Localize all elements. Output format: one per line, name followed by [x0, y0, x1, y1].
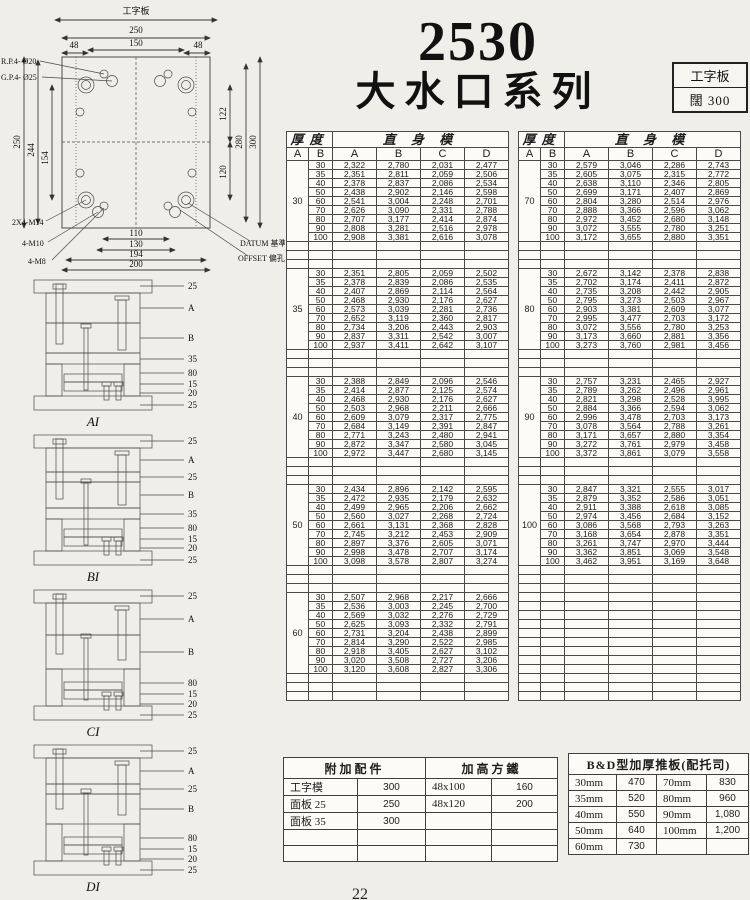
value-cell: 160: [492, 779, 558, 796]
empty-cell: [333, 368, 377, 377]
dim-value: 3,273: [609, 296, 653, 305]
thickness-block: 80302,6723,1422,3782,838352,7023,1742,41…: [519, 269, 741, 377]
spec-table-right: 厚度 直 身 模 A B A B C D 70302,5793,0462,286…: [518, 131, 741, 701]
empty-cell: [333, 476, 377, 485]
empty-cell: [284, 846, 358, 862]
empty-cell: [465, 242, 509, 251]
thickness-b-value: 100: [541, 233, 565, 242]
dim-value: 2,838: [697, 269, 741, 278]
empty-cell: [697, 251, 741, 260]
empty-row: [519, 242, 741, 251]
thickness-b-value: 35: [541, 278, 565, 287]
mold-pin: [104, 541, 109, 555]
empty-row: [287, 251, 509, 260]
dim-value: 2,788: [653, 422, 697, 431]
empty-cell: [541, 242, 565, 251]
dim-value: 2,086: [421, 278, 465, 287]
empty-row: [287, 458, 509, 467]
dim-value: 2,506: [465, 170, 509, 179]
dim-value: 2,662: [465, 503, 509, 512]
plate-callout: 20: [188, 854, 198, 864]
dim-value: 3,306: [465, 665, 509, 674]
thickness-a-value: 50: [287, 485, 309, 566]
thickness-b-value: 35: [541, 494, 565, 503]
dim-value: 2,788: [465, 206, 509, 215]
empty-cell: [541, 584, 565, 593]
empty-cell: [465, 584, 509, 593]
dim-value: 2,146: [421, 188, 465, 197]
dim-value: 2,315: [653, 170, 697, 179]
series-number: 2530: [292, 14, 664, 70]
empty-cell: [287, 575, 309, 584]
plate-callout: 35: [188, 509, 198, 519]
dim-value: 2,666: [465, 404, 509, 413]
dim-value: 2,496: [653, 386, 697, 395]
dim-value: 2,927: [697, 377, 741, 386]
dim-154: 154: [40, 151, 50, 165]
value-cell: 830: [707, 775, 749, 791]
plate-callout: 25: [188, 865, 198, 875]
empty-cell: [377, 350, 421, 359]
empty-cell: [609, 692, 653, 701]
empty-row: [287, 674, 509, 683]
dim-value: 2,734: [333, 323, 377, 332]
empty-cell: [653, 593, 697, 602]
empty-cell: [653, 368, 697, 377]
dim-280: 280: [234, 135, 244, 149]
dim-value: 3,263: [697, 521, 741, 530]
table-row: 602,6613,1312,3682,828: [287, 521, 509, 530]
mold-pin: [102, 692, 111, 696]
dim-value: 3,351: [697, 233, 741, 242]
thickness-b-value: 100: [541, 557, 565, 566]
table-row: 502,6993,1712,4072,869: [519, 188, 741, 197]
dim-value: 3,131: [377, 521, 421, 530]
empty-cell: [541, 674, 565, 683]
empty-cell: [465, 674, 509, 683]
dim-value: 2,780: [653, 224, 697, 233]
col-val-a: A: [565, 148, 609, 161]
thickness-b-value: 90: [309, 548, 333, 557]
thickness-b-value: 90: [541, 332, 565, 341]
empty-cell: [565, 359, 609, 368]
dim-194: 194: [129, 249, 143, 259]
col-header-thickness: 厚度: [287, 132, 333, 148]
item-cell: 30mm: [569, 775, 617, 791]
dim-value: 2,555: [653, 485, 697, 494]
dim-value: 3,456: [609, 512, 653, 521]
dim-value: 2,580: [421, 440, 465, 449]
table-row: 352,4142,8772,1252,574: [287, 386, 509, 395]
dim-value: 2,888: [565, 206, 609, 215]
thickness-b-value: 80: [309, 431, 333, 440]
diagram-label: CI: [87, 724, 101, 739]
dim-value: 2,666: [465, 593, 509, 602]
dim-value: 2,528: [653, 395, 697, 404]
dim-value: 2,795: [565, 296, 609, 305]
dim-value: 2,059: [421, 269, 465, 278]
dim-value: 2,217: [421, 593, 465, 602]
mold-plate: [64, 845, 122, 854]
value-cell: 200: [492, 796, 558, 813]
mold-diagram-DI: 25A25B80152025DI: [18, 743, 258, 898]
dim-value: 3,290: [377, 638, 421, 647]
table-row: 703,1683,6542,8783,351: [519, 530, 741, 539]
mold-plate: [64, 682, 122, 690]
mold-plate: [46, 824, 62, 861]
thickness-b-value: 35: [309, 386, 333, 395]
thickness-b-value: 35: [309, 494, 333, 503]
mold-pin: [116, 541, 121, 555]
empty-cell: [421, 260, 465, 269]
value-cell: 730: [617, 839, 657, 855]
bd-header-row: B&D型加厚推板(配托司): [569, 754, 749, 775]
callout-m14: 2X4-M14: [12, 218, 44, 227]
dim-value: 2,979: [653, 440, 697, 449]
dim-value: 3,352: [609, 494, 653, 503]
dim-value: 3,660: [609, 332, 653, 341]
table-row: 902,8723,3472,5803,045: [287, 440, 509, 449]
item-cell: 70mm: [657, 775, 707, 791]
plate-callout: 80: [188, 833, 198, 843]
empty-cell: [426, 846, 492, 862]
thickness-b-value: 70: [309, 314, 333, 323]
dim-value: 2,701: [465, 197, 509, 206]
empty-cell: [287, 458, 309, 467]
empty-cell: [609, 620, 653, 629]
mold-plate: [46, 353, 140, 364]
dim-value: 2,805: [697, 179, 741, 188]
thickness-b-value: 80: [309, 647, 333, 656]
dim-value: 2,414: [421, 215, 465, 224]
thickness-b-value: 40: [309, 611, 333, 620]
dim-value: 3,608: [377, 665, 421, 674]
thickness-b-value: 70: [309, 422, 333, 431]
table-row: 402,6383,1102,3462,805: [519, 179, 741, 188]
dim-value: 2,828: [465, 521, 509, 530]
table-row: 402,4072,8692,1142,564: [287, 287, 509, 296]
empty-cell: [377, 674, 421, 683]
mold-pin: [116, 851, 121, 865]
empty-cell: [697, 476, 741, 485]
empty-cell: [653, 251, 697, 260]
empty-cell: [541, 260, 565, 269]
empty-cell: [287, 359, 309, 368]
dim-122: 122: [218, 107, 228, 121]
table-body: 工字模30048x100160面板 2525048x120200面板 35300: [284, 779, 558, 862]
empty-cell: [333, 683, 377, 692]
empty-cell: [609, 260, 653, 269]
table-row: 工字模30048x100160: [284, 779, 558, 796]
table-row: 602,7313,2042,4382,899: [287, 629, 509, 638]
empty-cell: [492, 813, 558, 830]
dim-value: 2,804: [565, 197, 609, 206]
dim-value: 2,680: [653, 215, 697, 224]
thickness-b-value: 60: [541, 305, 565, 314]
empty-cell: [541, 602, 565, 611]
empty-cell: [541, 647, 565, 656]
plate-callout: 20: [188, 699, 198, 709]
table-row: 502,4382,9022,1462,598: [287, 188, 509, 197]
empty-cell: [465, 350, 509, 359]
empty-cell: [609, 674, 653, 683]
dim-value: 3,077: [697, 305, 741, 314]
col-header-group: 直 身 模: [565, 132, 741, 148]
table-row: 702,6523,1192,3602,817: [287, 314, 509, 323]
dim-value: 2,388: [333, 377, 377, 386]
thickness-b-value: 70: [309, 638, 333, 647]
empty-cell: [565, 629, 609, 638]
empty-cell: [653, 683, 697, 692]
table-row: 502,9743,4562,6843,152: [519, 512, 741, 521]
dim-value: 2,805: [377, 269, 421, 278]
empty-cell: [519, 665, 541, 674]
dim-value: 3,085: [697, 503, 741, 512]
empty-row: [287, 575, 509, 584]
thickness-b-value: 100: [309, 341, 333, 350]
dim-value: 3,027: [377, 512, 421, 521]
table-row: 502,6253,0932,3322,791: [287, 620, 509, 629]
thickness-block: 70302,5793,0462,2862,743352,6053,0752,31…: [519, 161, 741, 269]
dim-value: 2,821: [565, 395, 609, 404]
empty-cell: [565, 368, 609, 377]
mold-pin: [53, 439, 66, 444]
dim-value: 3,110: [609, 179, 653, 188]
callout-rp: R.P.4- Ø20: [1, 57, 36, 66]
table-row: 35mm52080mm960: [569, 791, 749, 807]
dim-value: 2,652: [333, 314, 377, 323]
dim-value: 2,911: [565, 503, 609, 512]
dim-value: 3,456: [697, 341, 741, 350]
dim-value: 2,700: [465, 602, 509, 611]
dim-value: 2,176: [421, 395, 465, 404]
dim-value: 2,699: [565, 188, 609, 197]
thickness-b-value: 50: [541, 404, 565, 413]
dim-value: 3,281: [377, 224, 421, 233]
dim-value: 3,172: [565, 233, 609, 242]
item-cell: 48x120: [426, 796, 492, 813]
dim-value: 3,648: [697, 557, 741, 566]
dim-value: 2,827: [421, 665, 465, 674]
empty-cell: [519, 611, 541, 620]
empty-cell: [519, 692, 541, 701]
dim-value: 2,793: [653, 521, 697, 530]
dim-value: 3,168: [565, 530, 609, 539]
dim-value: 2,407: [653, 188, 697, 197]
dim-value: 3,231: [609, 377, 653, 386]
dim-value: 2,772: [697, 170, 741, 179]
empty-cell: [565, 467, 609, 476]
table-row: 402,3782,8372,0862,534: [287, 179, 509, 188]
thickness-a-value: 60: [287, 593, 309, 674]
item-cell: 100mm: [657, 823, 707, 839]
thickness-block: 90302,7573,2312,4652,927352,7893,2622,49…: [519, 377, 741, 485]
dim-value: 2,368: [421, 521, 465, 530]
dim-value: 2,176: [421, 296, 465, 305]
dim-150: 150: [129, 38, 143, 48]
dim-value: 3,654: [609, 530, 653, 539]
empty-cell: [309, 467, 333, 476]
value-cell: 300: [358, 779, 426, 796]
mold-pin: [115, 296, 129, 300]
empty-cell: [287, 467, 309, 476]
empty-cell: [421, 458, 465, 467]
dim-value: 2,731: [333, 629, 377, 638]
dim-value: 2,503: [653, 296, 697, 305]
dim-value: 3,366: [609, 404, 653, 413]
thickness-b-value: 60: [309, 413, 333, 422]
dim-value: 2,179: [421, 494, 465, 503]
dim-value: 2,378: [653, 269, 697, 278]
dim-value: 3,169: [653, 557, 697, 566]
empty-cell: [465, 458, 509, 467]
dim-value: 3,072: [565, 224, 609, 233]
col-val-b: B: [377, 148, 421, 161]
dim-value: 2,724: [465, 512, 509, 521]
dim-value: 2,902: [377, 188, 421, 197]
mold-plate: [34, 280, 152, 293]
empty-cell: [697, 575, 741, 584]
empty-row: [519, 350, 741, 359]
thickness-a-value: 70: [519, 161, 541, 242]
dim-value: 3,102: [465, 647, 509, 656]
dim-value: 2,878: [653, 530, 697, 539]
empty-cell: [565, 350, 609, 359]
thickness-b-value: 40: [541, 287, 565, 296]
table-row: 352,5363,0032,2452,700: [287, 602, 509, 611]
catalog-page: 工字板 250 150 48 48 250 244 154 122 120 28…: [0, 0, 750, 900]
callout-m8: 4-M8: [28, 257, 46, 266]
empty-row: [519, 665, 741, 674]
col-header-thickness: 厚度: [519, 132, 565, 148]
thickness-b-value: 40: [309, 287, 333, 296]
table-row: 352,8793,3522,5863,051: [519, 494, 741, 503]
table-row: 60302,5072,9682,2172,666: [287, 593, 509, 602]
item-cell: 90mm: [657, 807, 707, 823]
empty-row: [519, 368, 741, 377]
empty-cell: [653, 575, 697, 584]
dim-value: 3,564: [609, 422, 653, 431]
table-row: 702,6263,0902,3312,788: [287, 206, 509, 215]
table-row: 402,7353,2082,4422,905: [519, 287, 741, 296]
thickness-b-value: 90: [309, 656, 333, 665]
mold-pin: [84, 328, 88, 390]
dim-value: 2,596: [653, 206, 697, 215]
table-row: 702,8143,2902,5222,985: [287, 638, 509, 647]
thickness-b-value: 40: [541, 395, 565, 404]
empty-row: [287, 476, 509, 485]
table-row: 803,1713,6572,8803,354: [519, 431, 741, 440]
plate-callout: 25: [188, 746, 198, 756]
dim-value: 3,172: [697, 314, 741, 323]
dim-value: 3,411: [377, 341, 421, 350]
empty-cell: [565, 620, 609, 629]
empty-cell: [541, 665, 565, 674]
empty-cell: [309, 368, 333, 377]
mold-plate: [124, 669, 140, 706]
plate-callout: 80: [188, 523, 198, 533]
dim-value: 3,558: [697, 449, 741, 458]
plate-callout: 80: [188, 678, 198, 688]
dim-value: 2,998: [333, 548, 377, 557]
mold-plate: [124, 519, 140, 551]
empty-cell: [519, 359, 541, 368]
value-cell: 960: [707, 791, 749, 807]
dim-value: 2,605: [565, 170, 609, 179]
dim-value: 2,789: [565, 386, 609, 395]
dim-value: 2,206: [421, 503, 465, 512]
item-cell: 50mm: [569, 823, 617, 839]
empty-cell: [519, 620, 541, 629]
empty-cell: [609, 566, 653, 575]
dim-value: 3,079: [653, 449, 697, 458]
dim-value: 2,703: [653, 314, 697, 323]
col-val-c: C: [421, 148, 465, 161]
dim-244: 244: [26, 143, 36, 157]
dim-value: 2,276: [421, 611, 465, 620]
dim-value: 3,273: [565, 341, 609, 350]
empty-cell: [609, 593, 653, 602]
table-row: 1003,0983,5782,8073,274: [287, 557, 509, 566]
empty-cell: [541, 467, 565, 476]
drawing-title: 工字板: [122, 5, 149, 16]
table-row: 602,9033,3812,6093,077: [519, 305, 741, 314]
thickness-b-value: 70: [541, 422, 565, 431]
dim-value: 3,372: [565, 449, 609, 458]
empty-cell: [492, 830, 558, 846]
dim-value: 3,039: [377, 305, 421, 314]
dim-value: 2,468: [333, 395, 377, 404]
thickness-b-value: 70: [541, 206, 565, 215]
dim-value: 2,514: [653, 197, 697, 206]
empty-cell: [541, 359, 565, 368]
empty-row: [519, 638, 741, 647]
dim-value: 2,703: [653, 413, 697, 422]
dim-value: 3,142: [609, 269, 653, 278]
dim-value: 3,071: [465, 539, 509, 548]
thickness-b-value: 90: [541, 440, 565, 449]
empty-cell: [377, 242, 421, 251]
empty-cell: [697, 665, 741, 674]
dim-value: 3,017: [697, 485, 741, 494]
dim-value: 2,684: [653, 512, 697, 521]
empty-cell: [287, 476, 309, 485]
plate-callout: 25: [188, 784, 198, 794]
dim-value: 3,298: [609, 395, 653, 404]
dim-value: 2,442: [653, 287, 697, 296]
empty-row: [519, 647, 741, 656]
empty-cell: [653, 359, 697, 368]
empty-cell: [609, 575, 653, 584]
dim-value: 2,465: [653, 377, 697, 386]
empty-cell: [609, 647, 653, 656]
table-row: 60mm730: [569, 839, 749, 855]
thickness-b-value: 90: [541, 548, 565, 557]
table-row: 70302,5793,0462,2862,743: [519, 161, 741, 170]
dim-value: 2,879: [565, 494, 609, 503]
value-cell: 520: [617, 791, 657, 807]
empty-cell: [519, 683, 541, 692]
dim-value: 2,245: [421, 602, 465, 611]
dim-value: 2,881: [653, 332, 697, 341]
empty-cell: [421, 359, 465, 368]
empty-cell: [609, 584, 653, 593]
dim-48-right: 48: [194, 40, 204, 50]
mold-pin: [53, 284, 66, 289]
dim-value: 2,248: [421, 197, 465, 206]
empty-cell: [426, 813, 492, 830]
empty-cell: [519, 593, 541, 602]
